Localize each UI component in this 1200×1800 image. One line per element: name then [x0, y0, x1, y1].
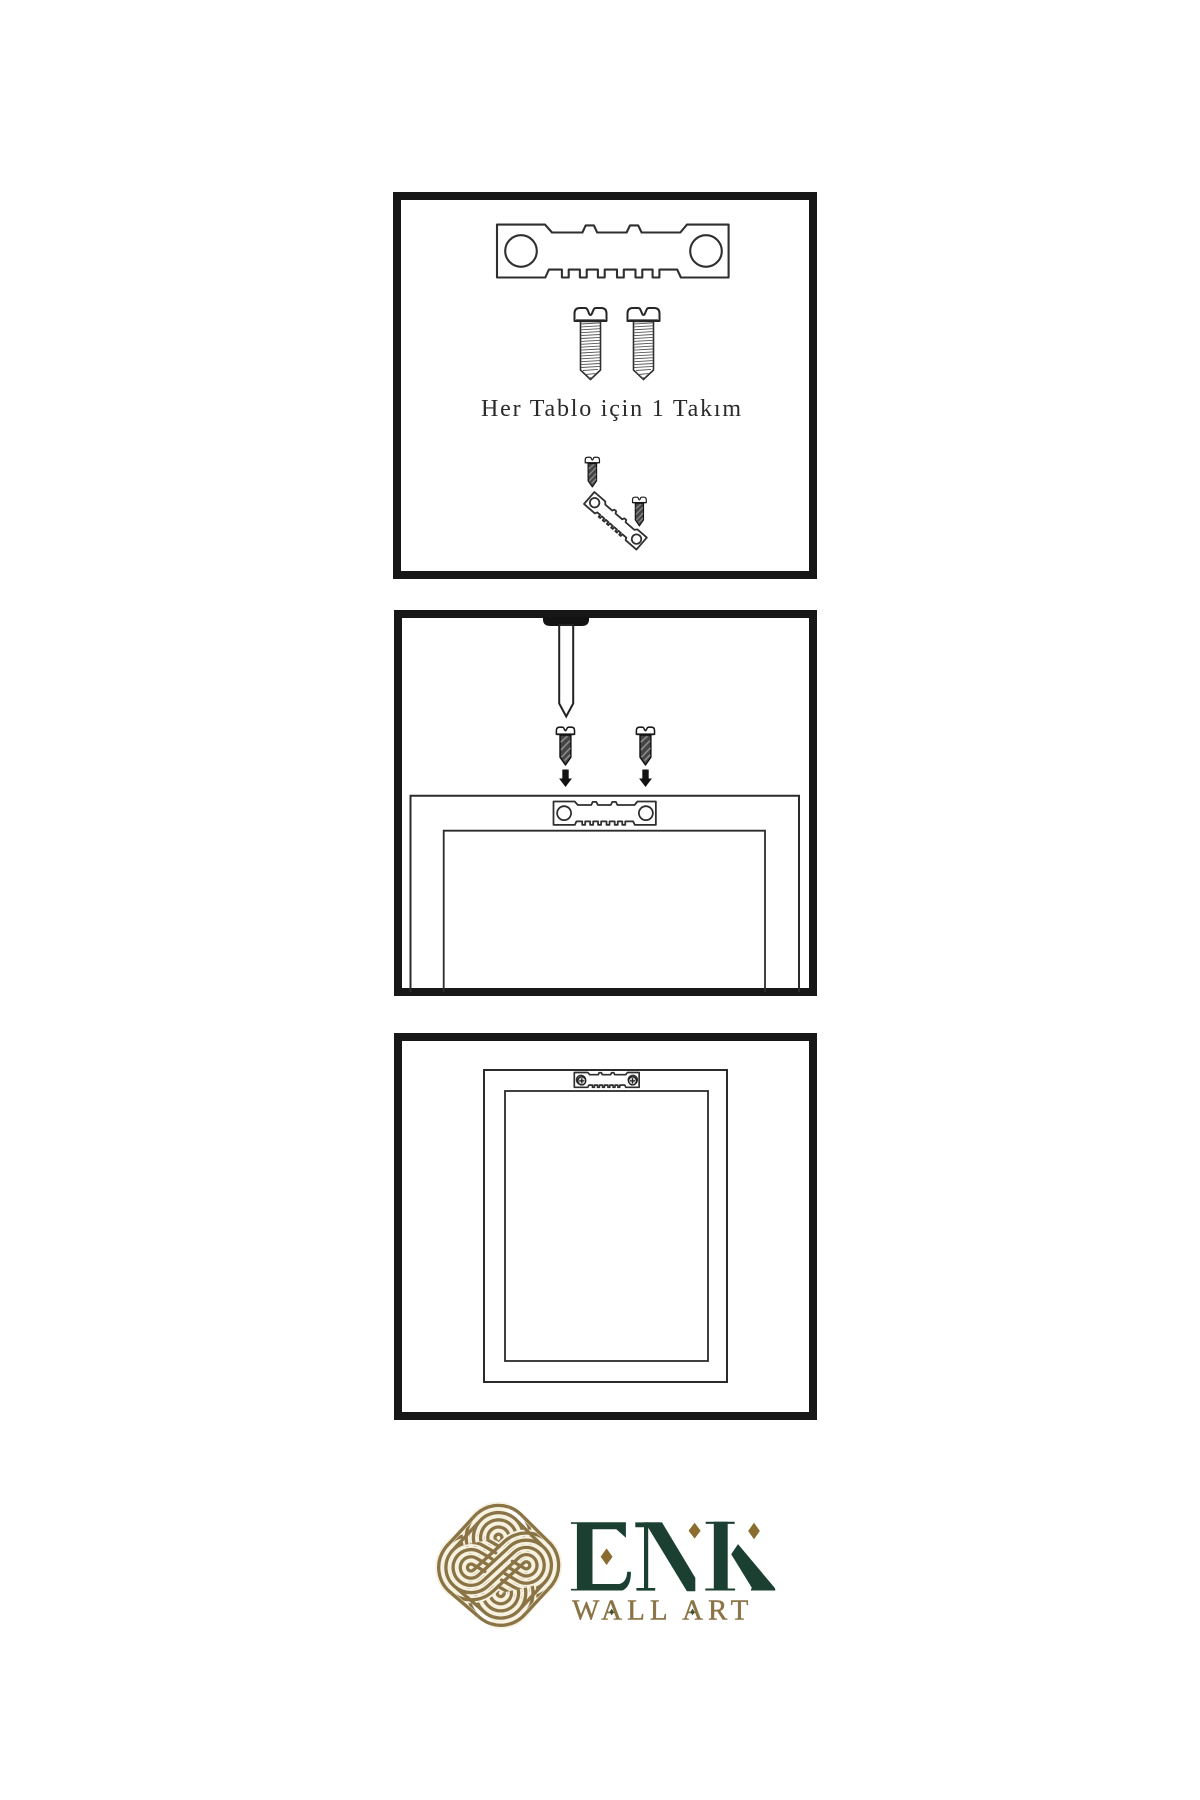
svg-text:Her Tablo için 1 Takım: Her Tablo için 1 Takım	[481, 396, 741, 422]
svg-text:WALL ART: WALL ART	[572, 1595, 753, 1627]
